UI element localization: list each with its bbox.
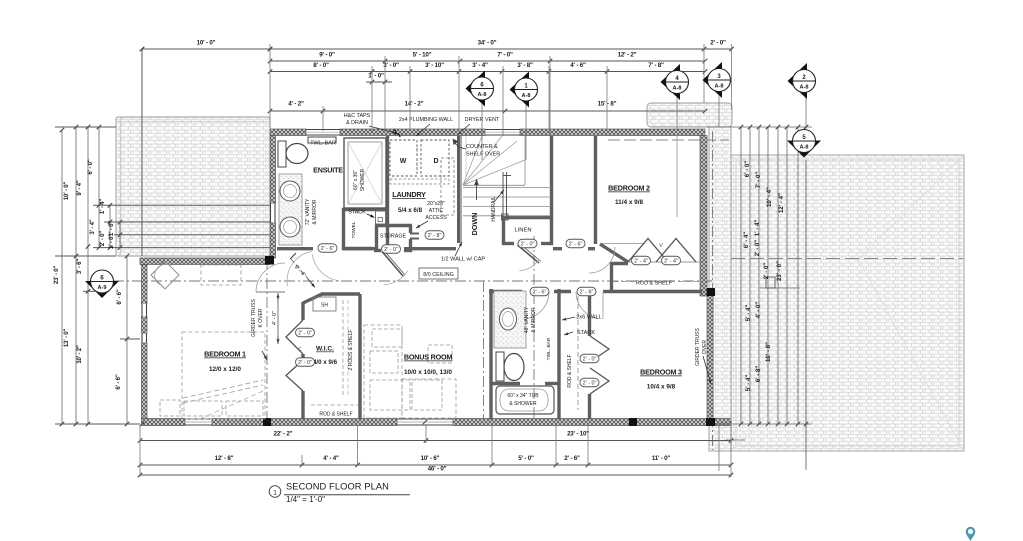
svg-text:ROD & SHELF: ROD & SHELF	[319, 412, 352, 418]
svg-text:1' - 0": 1' - 0"	[368, 73, 384, 80]
svg-text:7' - 0": 7' - 0"	[497, 52, 513, 59]
svg-text:STACK: STACK	[577, 330, 596, 336]
svg-text:23' - 10": 23' - 10"	[567, 431, 589, 438]
svg-text:9' - 0": 9' - 0"	[319, 52, 335, 59]
svg-text:2' - 4": 2' - 4"	[634, 259, 648, 265]
svg-text:2' - 6": 2' - 6"	[580, 290, 594, 296]
svg-text:2' - 6": 2' - 6"	[321, 246, 335, 252]
svg-text:46' - 0": 46' - 0"	[428, 466, 447, 473]
svg-text:3' - 10": 3' - 10"	[425, 62, 444, 69]
svg-text:4/0 x 9/6: 4/0 x 9/6	[313, 359, 338, 366]
svg-text:4' - 0": 4' - 0"	[755, 302, 762, 319]
svg-text:A-8: A-8	[799, 85, 808, 91]
svg-text:12' - 4": 12' - 4"	[778, 193, 785, 213]
svg-text:4' - 6": 4' - 6"	[570, 62, 586, 69]
svg-text:2' - 0": 2' - 0"	[298, 360, 312, 366]
svg-text:2' - 0": 2' - 0"	[99, 231, 106, 246]
svg-text:2' - 0": 2' - 0"	[754, 240, 761, 257]
svg-text:3' - 0": 3' - 0"	[383, 62, 399, 69]
svg-text:2' - 8": 2' - 8"	[428, 233, 442, 239]
svg-text:K OVER: K OVER	[258, 308, 264, 327]
svg-text:2' - 0": 2' - 0"	[583, 357, 597, 363]
svg-text:7' - 0": 7' - 0"	[755, 172, 762, 189]
svg-text:5' - 0": 5' - 0"	[518, 455, 534, 462]
svg-text:6' - 0": 6' - 0"	[87, 159, 94, 174]
svg-text:12' - 8": 12' - 8"	[215, 455, 234, 462]
svg-text:5' - 4": 5' - 4"	[745, 305, 752, 322]
svg-text:9' - 4": 9' - 4"	[76, 180, 83, 195]
svg-text:6' - 0": 6' - 0"	[744, 161, 751, 178]
svg-text:1' - 4": 1' - 4"	[754, 220, 761, 237]
svg-text:2' - 6": 2' - 6"	[569, 242, 583, 248]
svg-text:2' - 0": 2' - 0"	[298, 331, 312, 337]
svg-text:60" x 36": 60" x 36"	[353, 170, 359, 190]
svg-text:10' - 4": 10' - 4"	[766, 187, 773, 207]
svg-text:GIRDER TRUSS: GIRDER TRUSS	[251, 298, 257, 336]
svg-text:11/4 x 9/8: 11/4 x 9/8	[615, 199, 644, 206]
svg-text:8/0 CEILING: 8/0 CEILING	[423, 272, 454, 278]
svg-text:23' - 0": 23' - 0"	[53, 266, 60, 285]
svg-text:7' - 8": 7' - 8"	[648, 62, 664, 69]
svg-text:1: 1	[273, 489, 277, 496]
svg-text:2' - 0": 2' - 0"	[384, 247, 398, 253]
svg-text:BEDROOM 3: BEDROOM 3	[640, 368, 682, 377]
svg-text:13' - 0": 13' - 0"	[63, 329, 70, 348]
svg-text:1' - 0": 1' - 0"	[108, 234, 115, 249]
svg-text:ROD & SHELF: ROD & SHELF	[636, 281, 673, 287]
svg-text:1/4" = 1'-0": 1/4" = 1'-0"	[286, 495, 325, 504]
svg-text:3' - 4": 3' - 4"	[89, 219, 96, 234]
svg-text:ATTIC: ATTIC	[429, 208, 444, 214]
svg-text:A-8: A-8	[799, 145, 808, 151]
svg-text:SHELF OVER: SHELF OVER	[466, 152, 500, 158]
svg-text:2x6 WALL: 2x6 WALL	[576, 315, 602, 321]
svg-text:1/2 WALL w/ CAP: 1/2 WALL w/ CAP	[441, 257, 486, 263]
svg-text:TWL. BAR: TWL. BAR	[546, 337, 552, 360]
svg-text:SH: SH	[321, 303, 328, 309]
svg-text:ENSUITE: ENSUITE	[313, 166, 343, 175]
svg-text:OVER: OVER	[702, 340, 708, 355]
svg-text:10/4 x 9/8: 10/4 x 9/8	[647, 384, 676, 391]
svg-text:BEDROOM 1: BEDROOM 1	[204, 350, 246, 359]
svg-text:5/4 x 6/8: 5/4 x 6/8	[398, 207, 423, 214]
svg-text:3' - 8": 3' - 8"	[517, 62, 533, 69]
svg-text:10' - 8": 10' - 8"	[765, 342, 772, 362]
svg-text:A-9: A-9	[97, 285, 106, 291]
svg-text:12' - 2": 12' - 2"	[618, 52, 637, 59]
svg-text:48" VANITY: 48" VANITY	[524, 306, 530, 333]
svg-text:A-8: A-8	[714, 84, 723, 90]
svg-text:4' - 0": 4' - 0"	[272, 311, 278, 325]
svg-text:1' - 0": 1' - 0"	[108, 221, 115, 236]
svg-text:ACCESS: ACCESS	[425, 215, 447, 221]
svg-text:10' - 0": 10' - 0"	[63, 182, 70, 201]
svg-text:8' - 0": 8' - 0"	[313, 62, 329, 69]
svg-text:2' - 0": 2' - 0"	[763, 263, 770, 280]
svg-text:2' - 6": 2' - 6"	[564, 455, 580, 462]
svg-text:DOWN: DOWN	[470, 213, 479, 236]
svg-text:A-8: A-8	[672, 86, 681, 92]
svg-text:& DRAIN: & DRAIN	[346, 120, 368, 126]
svg-text:ROD & SHELF: ROD & SHELF	[567, 354, 573, 387]
svg-text:3' - 4": 3' - 4"	[472, 62, 488, 69]
svg-text:& SHOWER: & SHOWER	[509, 401, 537, 407]
svg-text:10/0 x 10/0, 13/0: 10/0 x 10/0, 13/0	[404, 369, 452, 376]
svg-text:6' - 6": 6' - 6"	[115, 374, 122, 389]
svg-text:4' - 4": 4' - 4"	[323, 455, 339, 462]
svg-text:H&C TAPS: H&C TAPS	[344, 113, 371, 119]
svg-text:& MIRROR: & MIRROR	[312, 199, 318, 224]
svg-text:2' - 4": 2' - 4"	[664, 259, 678, 265]
svg-text:W: W	[400, 158, 407, 165]
svg-text:60" x 34" TUB: 60" x 34" TUB	[507, 393, 539, 399]
svg-text:& MIRROR: & MIRROR	[531, 307, 537, 332]
svg-text:12/0 x 12/0: 12/0 x 12/0	[209, 366, 241, 373]
svg-text:3' - 6": 3' - 6"	[76, 259, 83, 274]
svg-text:A-8: A-8	[521, 93, 530, 99]
svg-text:6' - 6": 6' - 6"	[116, 289, 123, 304]
svg-text:GIRDER TRUSS: GIRDER TRUSS	[695, 327, 701, 365]
svg-text:5' - 4": 5' - 4"	[745, 375, 752, 392]
svg-text:A-8: A-8	[477, 92, 486, 98]
svg-text:20"x28": 20"x28"	[427, 201, 445, 207]
svg-text:1' - 4": 1' - 4"	[99, 199, 106, 214]
svg-text:SECOND FLOOR PLAN: SECOND FLOOR PLAN	[286, 482, 389, 492]
svg-text:10' - 6": 10' - 6"	[421, 455, 440, 462]
svg-text:23' - 0": 23' - 0"	[776, 261, 783, 281]
svg-text:72" VANITY: 72" VANITY	[305, 198, 311, 225]
svg-text:D: D	[433, 158, 438, 165]
svg-text:2' - 0": 2' - 0"	[710, 40, 726, 47]
svg-text:6' - 8": 6' - 8"	[755, 366, 762, 383]
svg-text:34' - 0": 34' - 0"	[478, 40, 497, 47]
svg-text:LINEN: LINEN	[514, 228, 531, 234]
svg-text:2' - 0": 2' - 0"	[521, 242, 535, 248]
svg-text:BONUS ROOM: BONUS ROOM	[404, 353, 453, 362]
svg-text:14' - 2": 14' - 2"	[405, 101, 424, 108]
svg-text:STACK: STACK	[348, 210, 366, 216]
svg-text:2 RODS & SHELF: 2 RODS & SHELF	[348, 330, 354, 371]
svg-text:4' - 2": 4' - 2"	[288, 101, 304, 108]
svg-text:10' - 0": 10' - 0"	[197, 40, 216, 47]
svg-text:BEDROOM 2: BEDROOM 2	[608, 184, 650, 193]
svg-text:22' - 2": 22' - 2"	[274, 431, 293, 438]
svg-text:TOWEL: TOWEL	[351, 221, 357, 238]
svg-text:5' - 10": 5' - 10"	[413, 52, 432, 59]
svg-text:V: V	[659, 243, 663, 249]
svg-text:LAUNDRY: LAUNDRY	[392, 190, 426, 199]
svg-text:2' - 0": 2' - 0"	[583, 381, 597, 387]
svg-text:2x4 PLUMBING WALL: 2x4 PLUMBING WALL	[399, 117, 453, 123]
svg-text:STORAGE: STORAGE	[380, 234, 407, 240]
svg-text:11' - 0": 11' - 0"	[652, 455, 671, 462]
svg-text:10' - 2": 10' - 2"	[76, 345, 83, 364]
svg-text:2' - 6": 2' - 6"	[533, 290, 547, 296]
svg-text:SHOWER: SHOWER	[360, 168, 366, 191]
svg-text:6' - 4": 6' - 4"	[743, 232, 750, 249]
svg-text:W.I.C.: W.I.C.	[316, 346, 334, 353]
